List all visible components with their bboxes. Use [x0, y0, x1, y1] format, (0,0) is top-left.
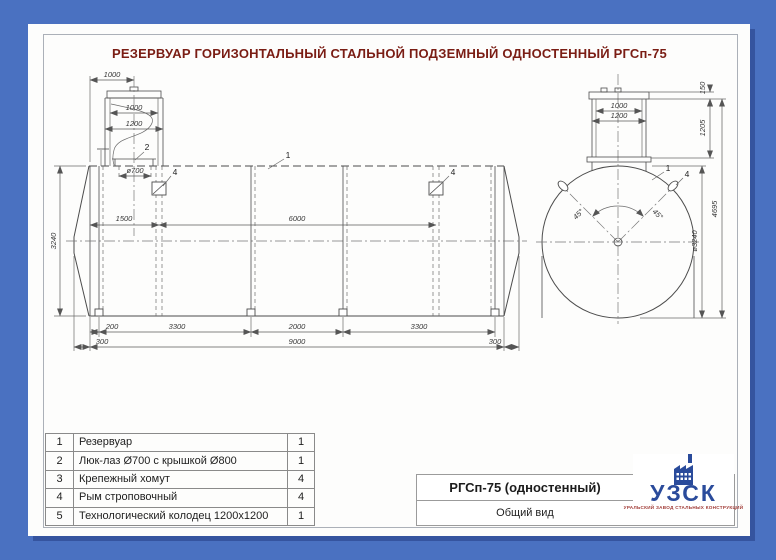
dim-label: ø700	[126, 166, 144, 175]
part-qty: 1	[288, 452, 315, 470]
logo-full-name: УРАЛЬСКИЙ ЗАВОД СТАЛЬНЫХ КОНСТРУКЦИЙ	[624, 505, 744, 510]
vent-pipe	[97, 149, 109, 166]
dim-label: 1000	[104, 70, 122, 79]
table-row: 3 Крепежный хомут 4	[46, 470, 315, 488]
callout-manhole: 2	[145, 142, 150, 152]
part-number: 2	[46, 452, 74, 470]
dim-label: 4695	[710, 200, 719, 218]
dim-label: 45°	[651, 207, 665, 221]
callout-eye: 4	[685, 169, 690, 179]
callout-eye-right: 4	[451, 167, 456, 177]
dim-label: 3300	[411, 322, 429, 331]
dim-label: 1205	[698, 119, 707, 137]
end-eye-right	[666, 179, 679, 192]
view-caption: Общий вид	[417, 501, 633, 525]
dim-label: 9000	[289, 337, 307, 346]
dim-label: 300	[96, 337, 109, 346]
side-view	[66, 76, 527, 316]
title-block: РГСп-75 (одностенный) Общий вид УЗСК УРА…	[416, 474, 735, 526]
part-number: 1	[46, 434, 74, 452]
part-number: 4	[46, 489, 74, 507]
part-name: Крепежный хомут	[74, 470, 288, 488]
scanned-drawing-page: РЕЗЕРВУАР ГОРИЗОНТАЛЬНЫЙ СТАЛЬНОЙ ПОДЗЕМ…	[0, 0, 776, 560]
end-eye-left	[556, 179, 569, 192]
part-number: 5	[46, 507, 74, 525]
dim-label: 45°	[571, 207, 585, 221]
part-qty: 4	[288, 470, 315, 488]
table-row: 4 Рым строповочный 4	[46, 489, 315, 507]
side-view-dimensions: 1000 1000 1200 ø700 1500 6000 3240 200 3…	[49, 70, 519, 351]
dim-label: 1000	[611, 101, 629, 110]
callout-tank: 1	[286, 150, 291, 160]
part-qty: 1	[288, 507, 315, 525]
dim-label: 3240	[49, 232, 58, 250]
table-row: 5 Технологический колодец 1200х1200 1	[46, 507, 315, 525]
dim-label: 1500	[116, 214, 134, 223]
dim-label: 3300	[169, 322, 187, 331]
dim-label: 1200	[126, 119, 144, 128]
dim-label: 1000	[126, 103, 144, 112]
dim-label: 300	[489, 337, 502, 346]
callout-eye-left: 4	[173, 167, 178, 177]
company-logo: УЗСК УРАЛЬСКИЙ ЗАВОД СТАЛЬНЫХ КОНСТРУКЦИ…	[633, 454, 734, 525]
dim-label: 6000	[289, 214, 307, 223]
part-name: Люк-лаз Ø700 с крышкой Ø800	[74, 452, 288, 470]
part-name: Технологический колодец 1200х1200	[74, 507, 288, 525]
parts-table: 1 Резервуар 1 2 Люк-лаз Ø700 с крышкой Ø…	[45, 433, 315, 526]
part-name: Резервуар	[74, 434, 288, 452]
table-row: 1 Резервуар 1	[46, 434, 315, 452]
part-name: Рым строповочный	[74, 489, 288, 507]
table-row: 2 Люк-лаз Ø700 с крышкой Ø800 1	[46, 452, 315, 470]
dim-label: 200	[105, 322, 119, 331]
logo-abbr: УЗСК	[650, 483, 717, 504]
technological-well	[105, 76, 163, 236]
dim-label: 2000	[288, 322, 307, 331]
part-qty: 1	[288, 434, 315, 452]
end-view-dimensions: 1000 1200 150 1205 4695 ø3240 45° 45	[571, 81, 726, 318]
callout-tank: 1	[666, 163, 671, 173]
lifting-eye-left	[152, 182, 166, 195]
dim-label: 1200	[611, 111, 629, 120]
product-designation: РГСп-75 (одностенный)	[417, 475, 634, 501]
dim-label: 150	[698, 81, 707, 94]
part-qty: 4	[288, 489, 315, 507]
part-number: 3	[46, 470, 74, 488]
dim-label: ø3240	[690, 230, 699, 252]
